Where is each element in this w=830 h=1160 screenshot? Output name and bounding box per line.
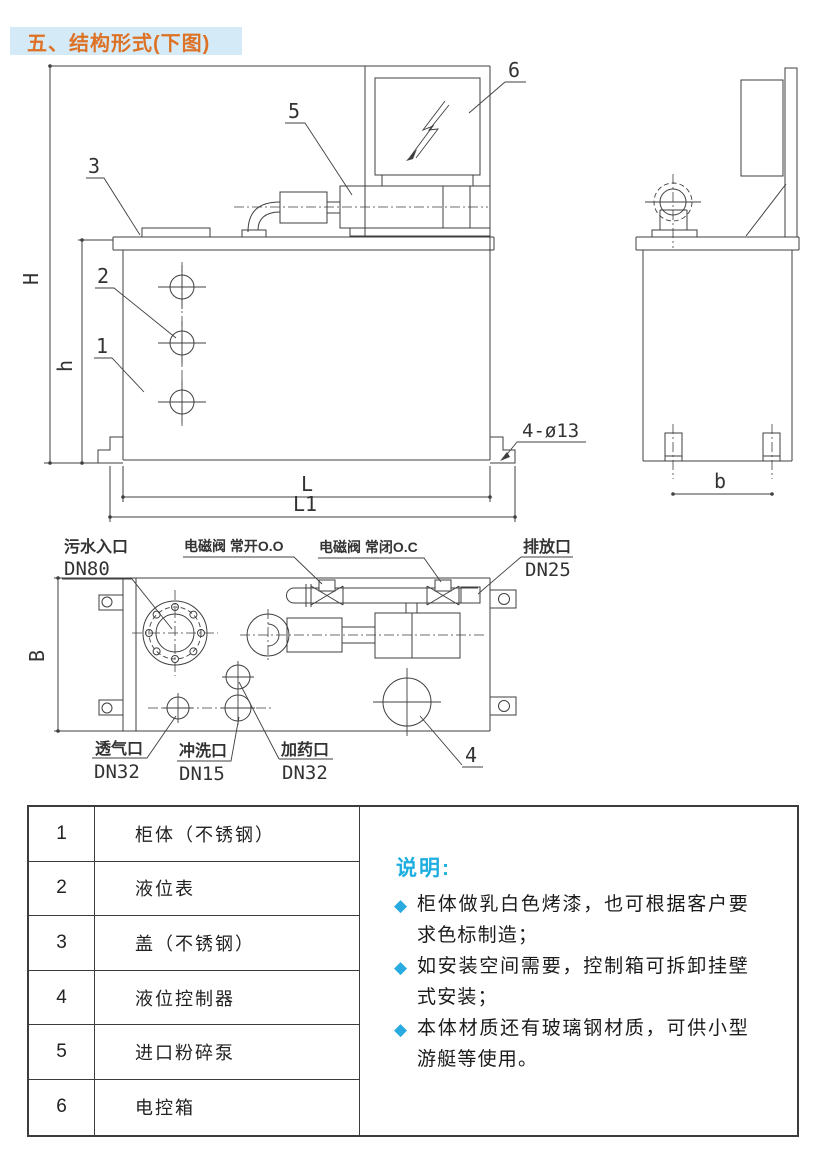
control-box-side: [741, 80, 783, 176]
inlet-dn-label: DN80: [64, 558, 110, 580]
diamond-bullet-icon: ◆: [394, 1014, 408, 1045]
pump-base: [350, 228, 490, 236]
valve-no-label: 电磁阀 常开O.O: [184, 538, 284, 554]
side-view: b: [636, 68, 799, 496]
part-name: 进口粉碎泵: [95, 1025, 360, 1080]
part-number: 4: [29, 971, 95, 1026]
dim-b: b: [714, 469, 726, 493]
dim-B: B: [25, 650, 49, 662]
note-text: 如安装空间需要，控制箱可拆卸挂壁式安装；: [417, 956, 749, 1008]
part-name: 盖（不锈钢）: [95, 916, 360, 971]
pump-front: [234, 186, 490, 237]
muffler: [280, 192, 327, 223]
vent-dn-label: DN32: [94, 761, 140, 783]
note-text: 本体材质还有玻璃钢材质，可供小型游艇等使用。: [417, 1018, 749, 1070]
flush-dn-label: DN15: [179, 763, 225, 785]
drain-dn-label: DN25: [525, 559, 571, 581]
diamond-bullet-icon: ◆: [394, 952, 408, 983]
plan-view: B: [25, 537, 573, 785]
callout-2: 2: [97, 264, 109, 288]
solenoid-valve-piping: [287, 580, 481, 613]
ports: [148, 661, 272, 725]
callout-5: 5: [288, 99, 300, 123]
level-controller: [373, 668, 441, 736]
lid-handle: [142, 228, 210, 237]
part-name: 柜体（不锈钢）: [95, 807, 360, 862]
inlet-flange: [132, 590, 218, 676]
part-number: 3: [29, 916, 95, 971]
parts-table: 1 柜体（不锈钢） 说明: ◆柜体做乳白色烤漆，也可根据客户要求色标制造； ◆如…: [27, 805, 799, 1137]
electric-control-box: [375, 78, 480, 175]
catalog-page: 五、结构形式(下图) H h: [0, 0, 830, 1160]
callout-6: 6: [508, 58, 520, 82]
note-item: ◆如安装空间需要，控制箱可拆卸挂壁式安装；: [396, 951, 749, 1013]
notes-heading: 说明:: [396, 852, 797, 882]
callout-1: 1: [96, 334, 108, 358]
front-view: H h: [19, 58, 586, 522]
part-name: 液位表: [95, 862, 360, 917]
technical-drawing: H h: [0, 0, 830, 800]
notes-section: 说明: ◆柜体做乳白色烤漆，也可根据客户要求色标制造； ◆如安装空间需要，控制箱…: [360, 807, 797, 1135]
left-foot: [98, 437, 123, 463]
note-item: ◆本体材质还有玻璃钢材质，可供小型游艇等使用。: [396, 1013, 749, 1075]
callout-4: 4: [465, 743, 477, 767]
dose-dn-label: DN32: [282, 762, 328, 784]
mounting-panel: [785, 68, 797, 237]
vent-label: 透气口: [95, 739, 143, 758]
valve-nc-label: 电磁阀 常闭O.C: [319, 539, 418, 555]
drain-label: 排放口: [523, 537, 571, 556]
part-number: 1: [29, 807, 95, 862]
pump-plan: [240, 609, 486, 661]
diamond-bullet-icon: ◆: [394, 890, 408, 921]
part-name: 电控箱: [95, 1080, 360, 1135]
dim-h: h: [53, 360, 77, 372]
part-number: 2: [29, 862, 95, 917]
support-brace: [746, 184, 786, 236]
part-number: 6: [29, 1080, 95, 1135]
dim-H: H: [19, 273, 43, 285]
lightning-bolt-icon: [406, 101, 449, 161]
part-number: 5: [29, 1025, 95, 1080]
inlet-label: 污水入口: [64, 537, 128, 556]
note-item: ◆柜体做乳白色烤漆，也可根据客户要求色标制造；: [396, 889, 749, 951]
mount-holes-label: 4-ø13: [522, 420, 579, 442]
pipe-flange: [242, 230, 266, 237]
dose-label: 加药口: [280, 740, 329, 759]
flush-label: 冲洗口: [179, 741, 227, 760]
part-name: 液位控制器: [95, 971, 360, 1026]
dim-L1: L1: [293, 492, 317, 516]
pump-side: [645, 174, 701, 248]
note-text: 柜体做乳白色烤漆，也可根据客户要求色标制造；: [417, 894, 749, 946]
callout-3: 3: [88, 154, 100, 178]
level-gauge-windows: [158, 262, 206, 426]
